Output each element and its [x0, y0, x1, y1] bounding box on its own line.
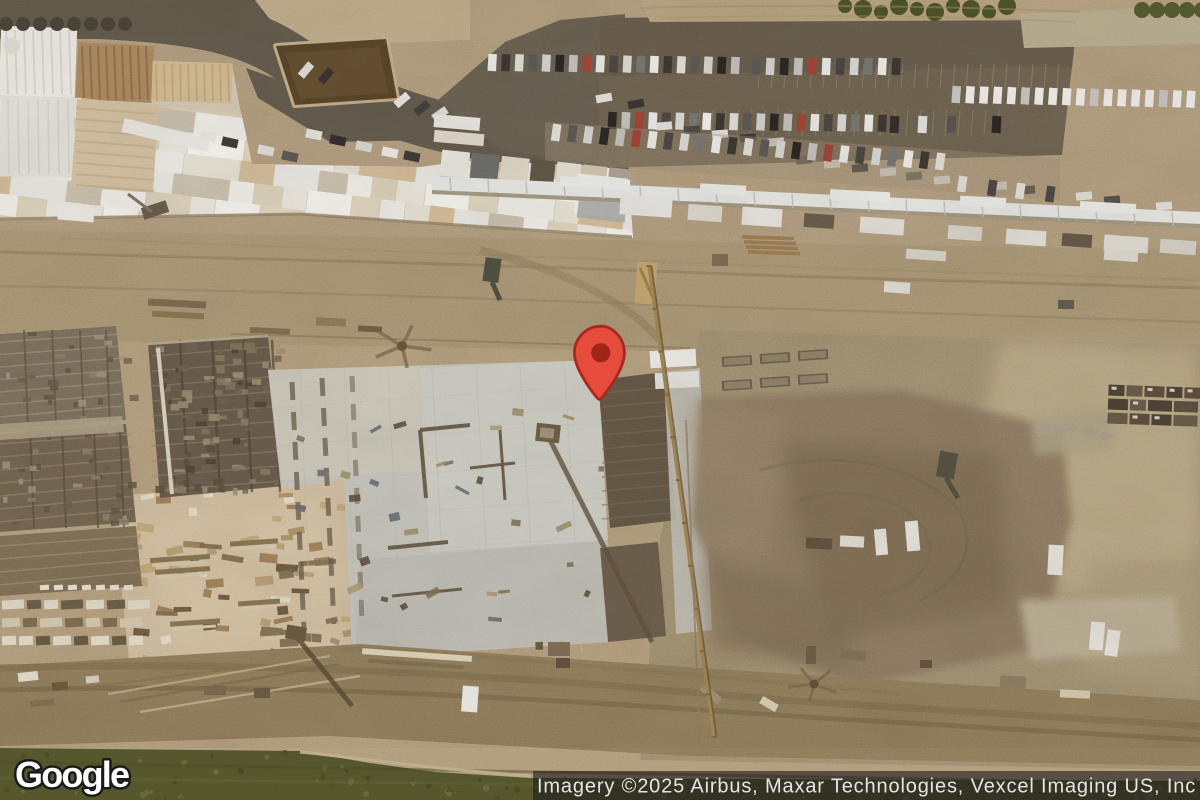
svg-text:Imagery ©2025 Airbus, Maxar Te: Imagery ©2025 Airbus, Maxar Technologies… [537, 776, 1196, 798]
svg-text:Google: Google [15, 754, 129, 795]
